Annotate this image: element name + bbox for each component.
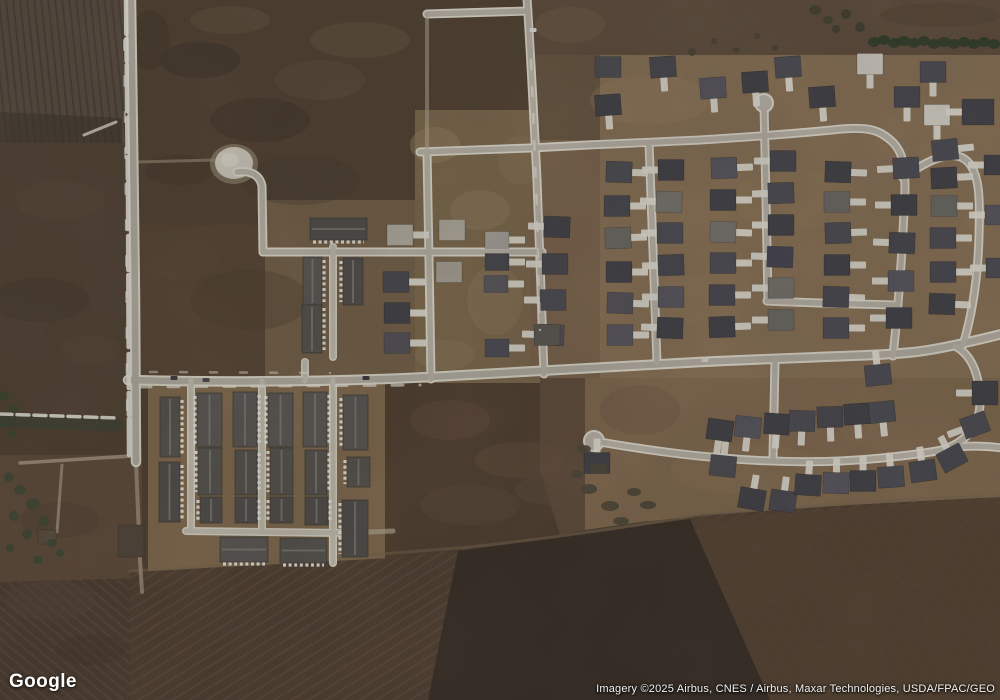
map-canvas[interactable]: Google Imagery ©2025 Airbus, CNES / Airb… (0, 0, 1000, 700)
google-logo[interactable]: Google (9, 671, 77, 693)
imagery-attribution: Imagery ©2025 Airbus, CNES / Airbus, Max… (596, 683, 995, 695)
satellite-imagery (0, 0, 1000, 700)
grain-overlay-light (0, 0, 1000, 700)
